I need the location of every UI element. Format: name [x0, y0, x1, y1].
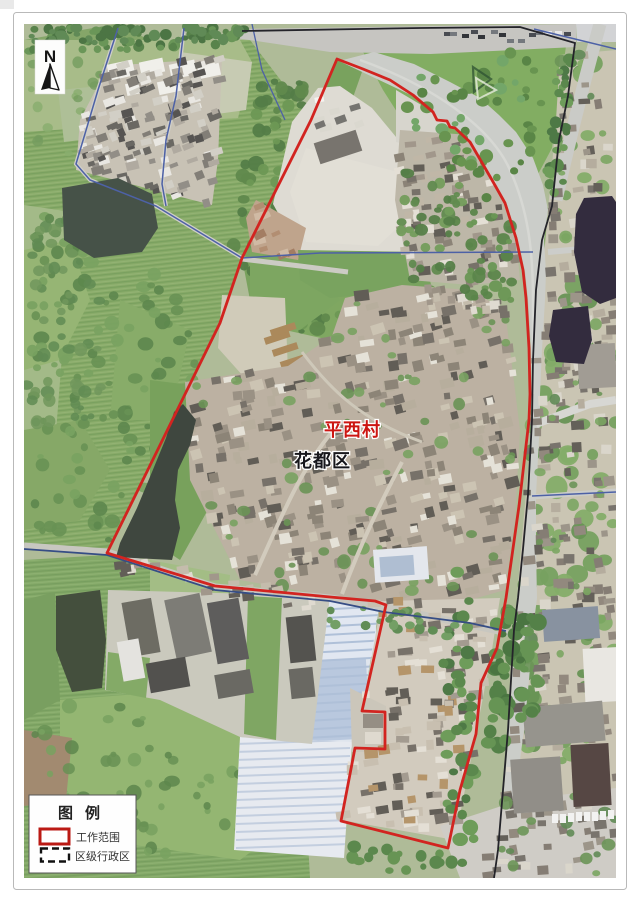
- svg-text:花都区: 花都区: [294, 450, 351, 471]
- svg-text:N: N: [44, 47, 56, 66]
- svg-text:区级行政区: 区级行政区: [75, 849, 130, 863]
- svg-text:图例: 图例: [58, 804, 112, 822]
- svg-text:工作范围: 工作范围: [76, 830, 120, 844]
- svg-text:平西村: 平西村: [324, 419, 381, 440]
